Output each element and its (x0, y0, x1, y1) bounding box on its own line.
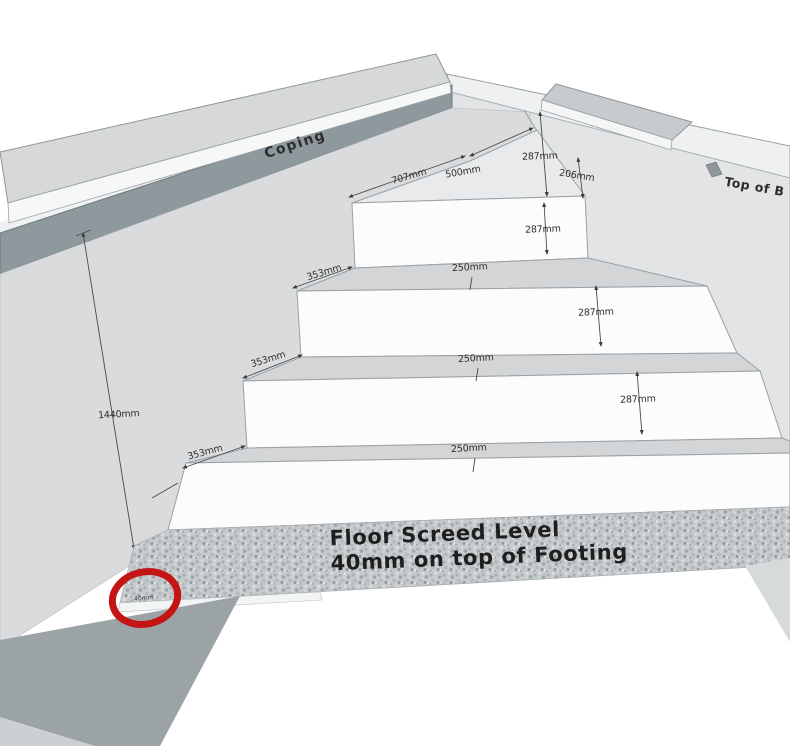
diagram-svg: Coping Top of B Floor Screed Level 40mm … (0, 0, 790, 746)
dim-tread-1-width: 250mm (451, 442, 487, 455)
step-3-riser (297, 286, 737, 357)
dim-tread-3-width: 250mm (452, 261, 488, 274)
step-2-riser (243, 371, 782, 448)
dim-riser-3: 287mm (578, 306, 614, 318)
dim-tread-2-width: 250mm (458, 352, 494, 365)
dim-riser-4: 287mm (525, 223, 561, 235)
construction-diagram: Coping Top of B Floor Screed Level 40mm … (0, 0, 790, 746)
dim-riser-2: 287mm (620, 393, 656, 405)
dim-wall-height: 1440mm (98, 408, 140, 421)
dim-height-above-top-step: 287mm (522, 150, 558, 162)
